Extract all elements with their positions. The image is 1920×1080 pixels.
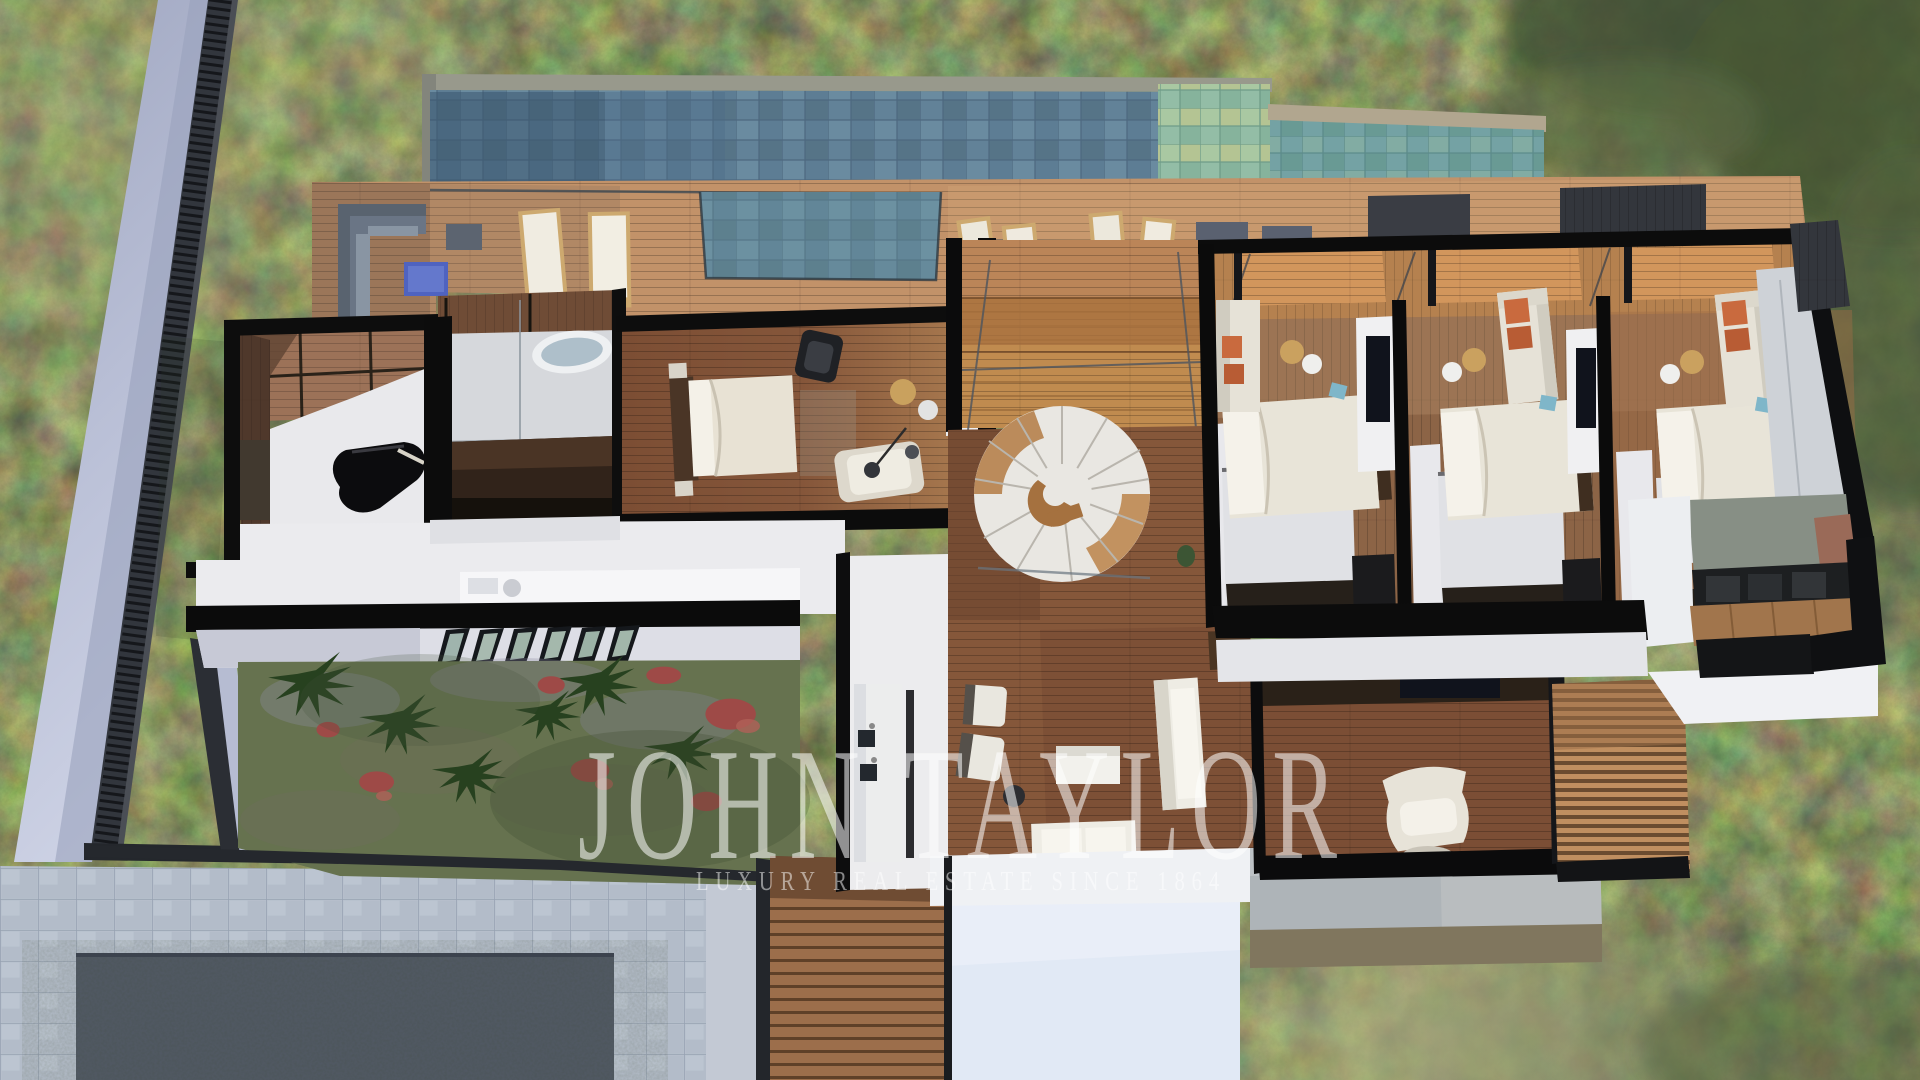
- svg-text:LUXURY REAL ESTATE SINCE 1864: LUXURY REAL ESTATE SINCE 1864: [696, 866, 1226, 896]
